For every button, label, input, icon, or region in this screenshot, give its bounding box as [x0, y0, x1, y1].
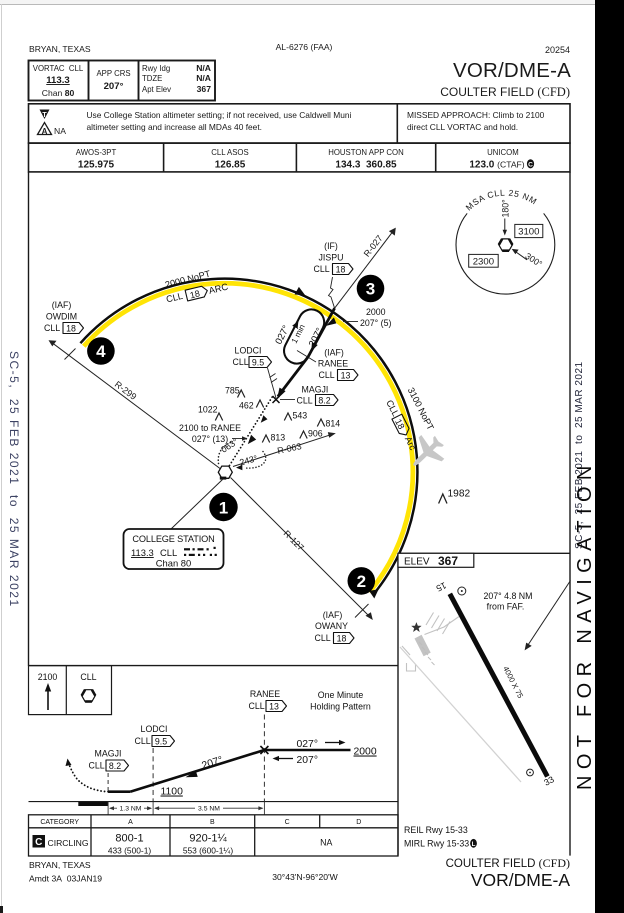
svg-text:AWOS-3PT: AWOS-3PT: [76, 148, 117, 157]
svg-text:126.85: 126.85: [215, 160, 246, 171]
svg-text:CLL: CLL: [80, 672, 96, 682]
svg-text:CLL: CLL: [89, 761, 105, 771]
svg-text:800-1: 800-1: [115, 833, 143, 845]
svg-text:A: A: [128, 819, 133, 826]
svg-text:Chan 80: Chan 80: [156, 558, 191, 569]
svg-text:N/A: N/A: [196, 63, 211, 73]
svg-text:(IAF): (IAF): [323, 610, 343, 620]
svg-text:CLL: CLL: [319, 370, 335, 380]
svg-text:altimeter setting and increase: altimeter setting and increase all MDAs …: [87, 122, 263, 132]
svg-text:1100: 1100: [161, 787, 184, 798]
svg-text:207° 4.8 NM: 207° 4.8 NM: [484, 591, 533, 601]
svg-text:30°43'N-96°20'W: 30°43'N-96°20'W: [272, 872, 338, 882]
svg-text:CLL: CLL: [135, 736, 151, 746]
svg-text:Rwy Idg: Rwy Idg: [142, 64, 170, 73]
svg-text:1982: 1982: [448, 489, 471, 500]
svg-text:3: 3: [366, 280, 375, 299]
svg-text:VORTAC CLL: VORTAC CLL: [33, 64, 84, 73]
svg-text:OWDIM: OWDIM: [46, 312, 77, 322]
svg-text:One Minute: One Minute: [318, 690, 364, 700]
svg-text:MIRL Rwy 15-33: MIRL Rwy 15-33: [404, 839, 469, 849]
svg-text:Use College Station altimeter: Use College Station altimeter setting; i…: [87, 110, 352, 120]
svg-text:BRYAN, TEXAS: BRYAN, TEXAS: [29, 44, 91, 54]
svg-text:027° (13): 027° (13): [192, 434, 228, 444]
svg-text:CLL: CLL: [160, 547, 177, 558]
svg-text:CIRCLING: CIRCLING: [48, 838, 89, 848]
svg-text:134.3 360.85: 134.3 360.85: [335, 160, 397, 171]
svg-text:2300: 2300: [473, 256, 494, 267]
svg-text:AL-6276 (FAA): AL-6276 (FAA): [276, 42, 333, 52]
svg-text:2000: 2000: [354, 747, 377, 758]
svg-text:L: L: [472, 841, 476, 848]
svg-text:462: 462: [239, 401, 254, 411]
svg-text:207° (5): 207° (5): [360, 318, 391, 328]
svg-text:20254: 20254: [545, 45, 570, 55]
svg-text:VOR/DME-A: VOR/DME-A: [453, 59, 571, 82]
svg-text:CLL: CLL: [233, 357, 249, 367]
svg-text:D: D: [356, 819, 361, 826]
svg-text:2100 to RANEE: 2100 to RANEE: [179, 423, 241, 433]
svg-text:2000: 2000: [366, 307, 386, 317]
svg-text:C: C: [285, 819, 290, 826]
svg-text:814: 814: [326, 419, 341, 429]
svg-text:HOUSTON APP CON: HOUSTON APP CON: [328, 148, 404, 157]
svg-text:1: 1: [219, 498, 228, 517]
svg-text:18: 18: [336, 264, 346, 274]
svg-text:(IAF): (IAF): [52, 300, 72, 310]
svg-text:NA: NA: [320, 838, 332, 848]
svg-text:8.2: 8.2: [109, 761, 121, 771]
svg-text:CLL: CLL: [314, 264, 330, 274]
svg-text:243°: 243°: [238, 453, 258, 467]
svg-text:13: 13: [341, 370, 351, 380]
svg-text:direct CLL VORTAC and hold.: direct CLL VORTAC and hold.: [407, 122, 518, 132]
svg-text:906: 906: [308, 429, 323, 439]
svg-text:COULTER FIELD (CFD): COULTER FIELD (CFD): [446, 856, 570, 870]
svg-text:027°: 027°: [297, 739, 319, 750]
svg-text:UNICOM: UNICOM: [487, 148, 519, 157]
svg-text:33: 33: [542, 774, 556, 788]
svg-text:RANEE: RANEE: [250, 689, 280, 699]
svg-text:ELEV: ELEV: [404, 557, 430, 568]
svg-text:VOR/DME-A: VOR/DME-A: [471, 870, 571, 890]
svg-text:CLL: CLL: [315, 633, 331, 643]
svg-text:LODCI: LODCI: [235, 346, 262, 356]
svg-text:3.5 NM: 3.5 NM: [198, 806, 220, 813]
svg-text:1.3 NM: 1.3 NM: [120, 806, 142, 813]
svg-text:553 (600-1¼): 553 (600-1¼): [183, 846, 233, 856]
svg-text:18: 18: [337, 633, 347, 643]
svg-text:207°: 207°: [201, 755, 225, 772]
svg-text:207°: 207°: [297, 755, 319, 766]
svg-text:1 min: 1 min: [290, 323, 307, 345]
svg-text:from FAF.: from FAF.: [487, 602, 525, 612]
svg-text:OWANY: OWANY: [315, 621, 348, 631]
svg-text:COULTER FIELD (CFD): COULTER FIELD (CFD): [440, 85, 570, 99]
svg-text:433 (500-1): 433 (500-1): [108, 846, 152, 856]
svg-text:13: 13: [269, 701, 279, 711]
svg-text:180°: 180°: [501, 199, 511, 217]
svg-text:B: B: [210, 819, 215, 826]
svg-text:JISPU: JISPU: [319, 253, 344, 263]
svg-text:CLL: CLL: [249, 701, 265, 711]
svg-text:1022: 1022: [198, 405, 218, 415]
svg-text:LODCI: LODCI: [141, 724, 168, 734]
svg-text:113.3: 113.3: [131, 547, 154, 558]
svg-text:R-127: R-127: [282, 528, 306, 552]
svg-text:Holding Pattern: Holding Pattern: [310, 702, 371, 712]
svg-text:C: C: [528, 162, 533, 169]
svg-text:Apt Elev: Apt Elev: [142, 85, 171, 94]
svg-text:2100: 2100: [38, 672, 58, 682]
svg-text:920-1¼: 920-1¼: [189, 833, 227, 845]
svg-text:NA: NA: [54, 126, 66, 136]
svg-text:785: 785: [225, 386, 240, 396]
svg-text:TDZE: TDZE: [142, 74, 162, 83]
svg-text:(IAF): (IAF): [324, 348, 344, 358]
svg-text:813: 813: [271, 433, 286, 443]
svg-text:15: 15: [435, 580, 448, 593]
svg-text:CLL: CLL: [297, 396, 313, 406]
svg-text:207°: 207°: [104, 81, 124, 92]
svg-text:CLL: CLL: [44, 323, 60, 333]
svg-text:R-063: R-063: [276, 441, 302, 456]
svg-text:300°: 300°: [523, 251, 544, 269]
svg-text:CATEGORY: CATEGORY: [40, 819, 79, 826]
svg-text:8.2: 8.2: [318, 395, 330, 405]
svg-text:3100: 3100: [518, 227, 539, 238]
svg-text:BRYAN, TEXAS: BRYAN, TEXAS: [29, 860, 91, 870]
svg-text:MISSED APPROACH: Climb to 2100: MISSED APPROACH: Climb to 2100: [407, 110, 545, 120]
svg-text:3100 NoPT: 3100 NoPT: [406, 386, 436, 432]
svg-text:REIL Rwy 15-33: REIL Rwy 15-33: [404, 825, 468, 835]
svg-text:9.5: 9.5: [155, 736, 167, 746]
svg-text:C: C: [35, 837, 42, 848]
svg-text:9.5: 9.5: [252, 357, 264, 367]
svg-text:(IF): (IF): [324, 241, 338, 251]
svg-text:CLL ASOS: CLL ASOS: [211, 148, 248, 157]
svg-text:Amdt 3A 03JAN19: Amdt 3A 03JAN19: [29, 874, 102, 884]
svg-text:367: 367: [197, 84, 212, 94]
svg-text:RANEE: RANEE: [318, 359, 348, 369]
svg-text:18: 18: [66, 323, 76, 333]
svg-text:4: 4: [96, 342, 106, 361]
svg-text:APP CRS: APP CRS: [96, 69, 130, 78]
svg-text:R-027: R-027: [362, 233, 385, 258]
svg-text:MAGJI: MAGJI: [302, 385, 329, 395]
svg-text:MAGJI: MAGJI: [95, 749, 122, 759]
svg-text:T: T: [42, 112, 47, 119]
svg-text:125.975: 125.975: [78, 160, 115, 171]
svg-text:COLLEGE STATION: COLLEGE STATION: [132, 534, 214, 544]
svg-text:2: 2: [357, 572, 366, 591]
svg-text:367: 367: [438, 554, 458, 568]
svg-text:113.3: 113.3: [46, 75, 69, 86]
svg-text:A: A: [42, 127, 48, 136]
svg-text:123.0 (CTAF): 123.0 (CTAF): [469, 160, 524, 171]
svg-text:543: 543: [293, 411, 308, 421]
svg-text:Chan 80: Chan 80: [42, 88, 75, 98]
svg-text:N/A: N/A: [196, 73, 211, 83]
